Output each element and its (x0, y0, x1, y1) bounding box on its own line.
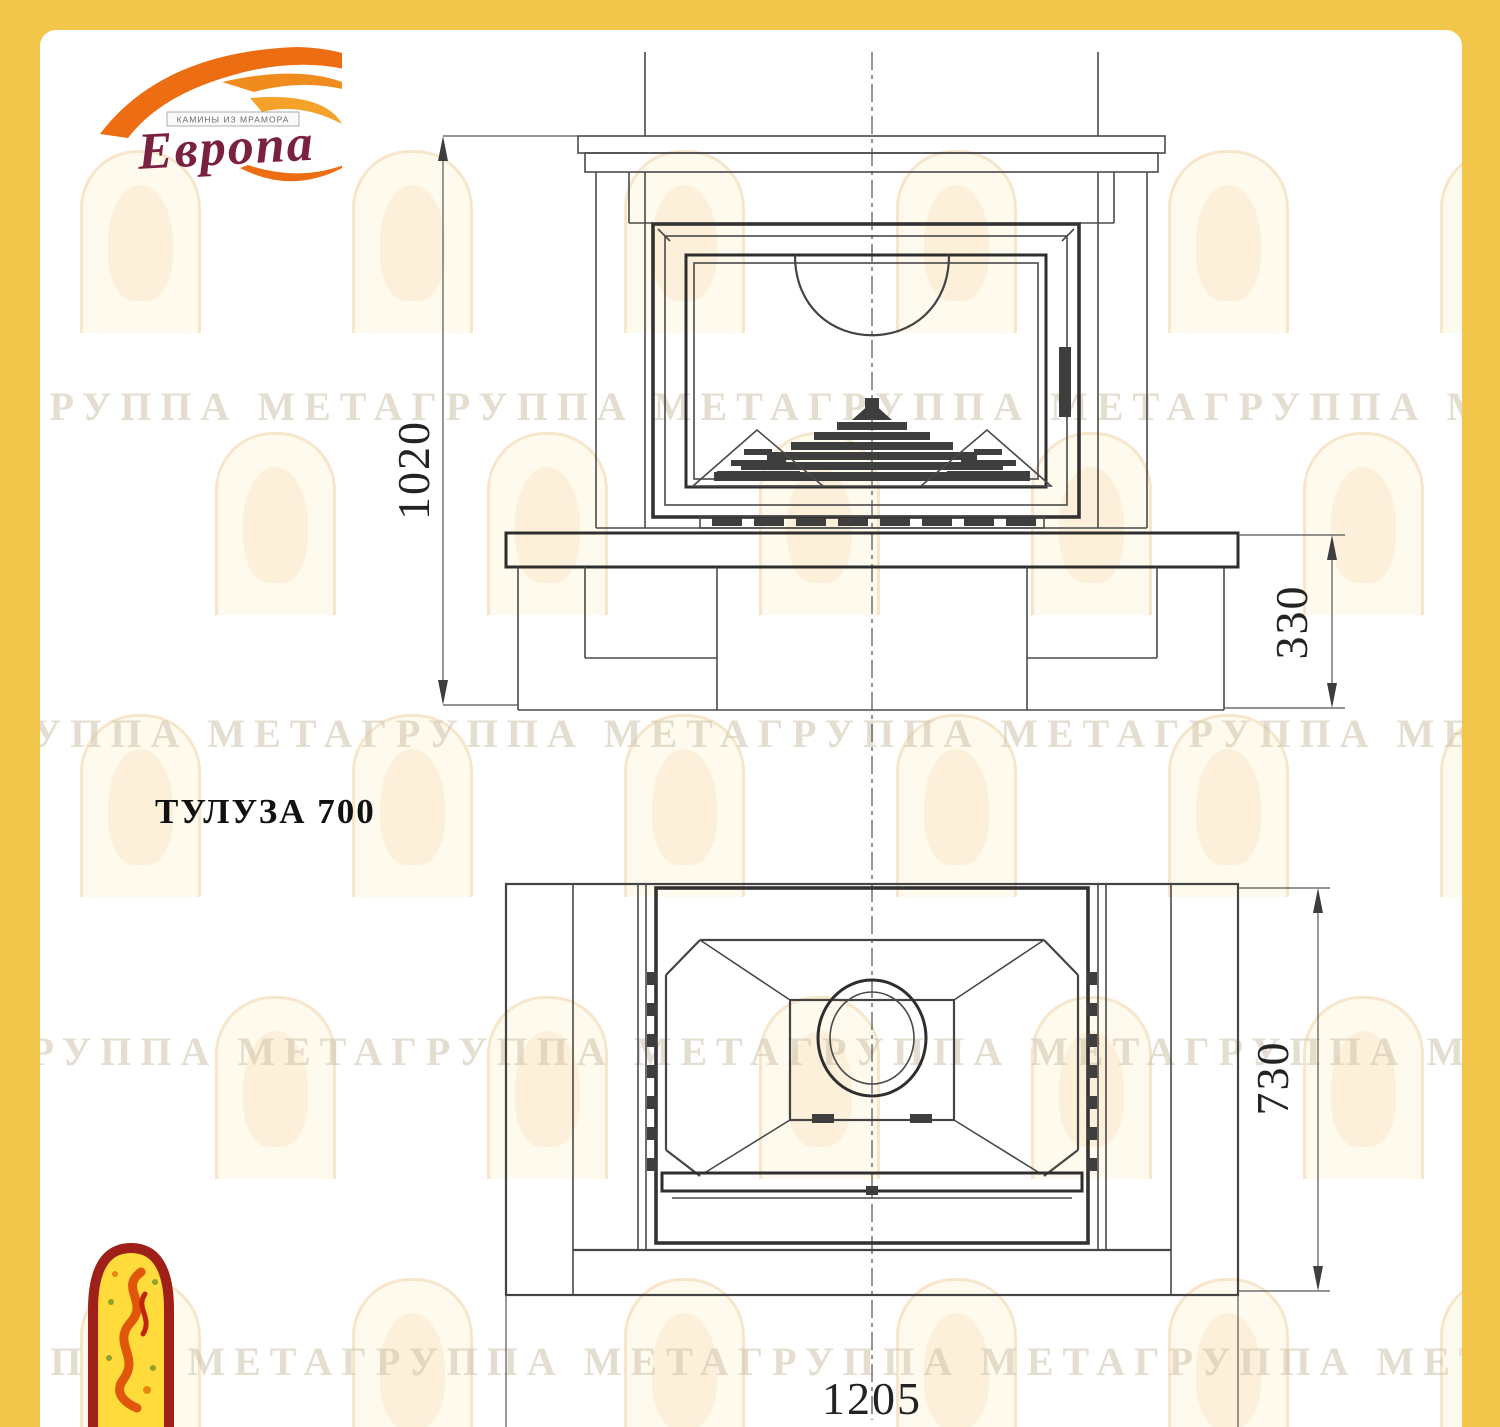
chamber-tick (910, 1114, 932, 1123)
fireplace-technical-drawing: 1020 330 (0, 0, 1500, 1427)
dim-label-plinth-height: 330 (1266, 585, 1317, 660)
firebird-emblem (83, 1238, 179, 1427)
dimension-plinth-330: 330 (1224, 535, 1345, 708)
dim-label-overall-width: 1205 (822, 1373, 922, 1424)
pedestal (518, 567, 1224, 710)
dim-label-overall-height: 1020 (388, 420, 439, 520)
logo-tagline-band: КАМИНЫ ИЗ МРАМОРА (167, 112, 299, 126)
dimension-height-1020: 1020 (388, 136, 578, 705)
plan-latch (866, 1186, 878, 1195)
dim-label-depth: 730 (1247, 1041, 1298, 1116)
catalog-page: { "title": "ТУЛУЗА 700", "logo": { "bran… (0, 0, 1500, 1427)
door-handle (1059, 347, 1071, 417)
logo-tagline: КАМИНЫ ИЗ МРАМОРА (177, 115, 290, 125)
chamber-tick (812, 1114, 834, 1123)
dimension-depth-730: 730 (1238, 888, 1330, 1291)
hinge-ticks (658, 229, 1074, 241)
europa-logo: Европа КАМИНЫ ИЗ МРАМОРА (72, 32, 342, 192)
model-title: ТУЛУЗА 700 (155, 792, 376, 832)
front-view (506, 52, 1238, 1420)
